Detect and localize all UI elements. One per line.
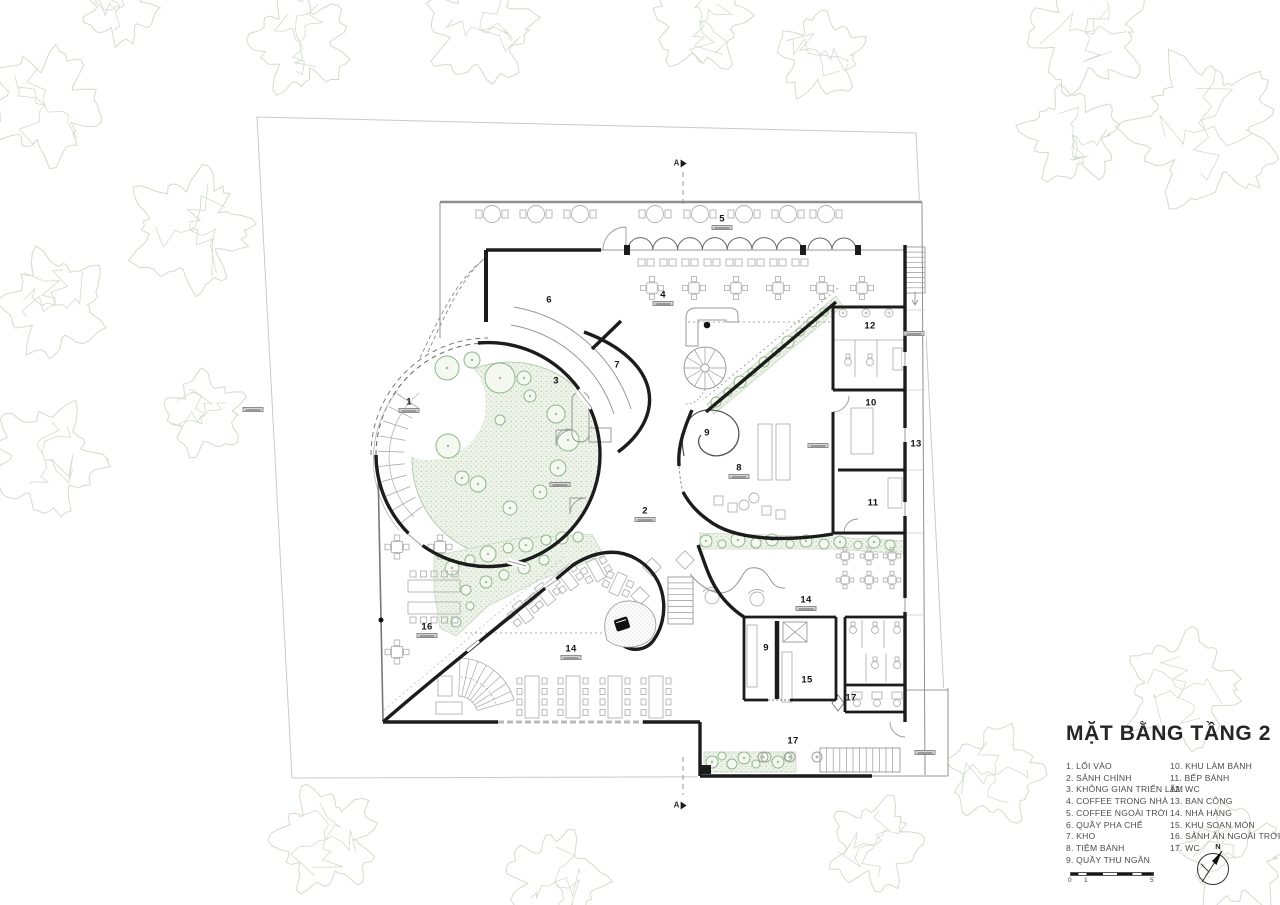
north-arrow-icon: N: [1192, 842, 1236, 892]
section-marker: A: [674, 159, 687, 168]
legend-item: 12. WC: [1170, 784, 1280, 796]
page-title: MẶT BẰNG TẦNG 2: [1066, 722, 1271, 746]
room-number-label: 8: [736, 463, 742, 474]
room-number-label: 3: [553, 376, 559, 387]
room-number-label: 1: [406, 397, 412, 408]
legend-item: 9. QUẦY THU NGÂN: [1066, 855, 1183, 867]
section-arrow-icon: [680, 801, 686, 809]
room-number-label: 4: [660, 290, 666, 301]
elevation-badge: [417, 633, 438, 638]
scale-bar-graphic: [1070, 872, 1154, 876]
room-number-label: 13: [910, 439, 921, 450]
elevation-badge: [915, 750, 936, 755]
room-number-label: 14: [565, 644, 576, 655]
legend-item: 2. SẢNH CHÍNH: [1066, 773, 1183, 785]
section-arrow-icon: [680, 159, 686, 167]
scale-tick-5: 5: [1150, 877, 1154, 884]
section-marker-label: A: [674, 159, 680, 168]
elevation-badge: [243, 407, 264, 412]
room-number-label: 11: [868, 498, 879, 509]
section-marker: A: [674, 801, 687, 810]
elevation-badge: [904, 331, 925, 336]
elevation-badge: [712, 225, 733, 230]
room-number-label: 17: [787, 736, 798, 747]
legend-item: 14. NHÀ HÀNG: [1170, 808, 1280, 820]
room-number-label: 9: [763, 643, 769, 654]
section-marker-label: A: [674, 801, 680, 810]
room-number-label: 10: [865, 398, 876, 409]
legend-item: 13. BAN CÔNG: [1170, 796, 1280, 808]
scale-tick-0: 0: [1068, 877, 1072, 884]
legend-item: 6. QUẦY PHA CHẾ: [1066, 820, 1183, 832]
legend-item: 5. COFFEE NGOÀI TRỜI: [1066, 808, 1183, 820]
elevation-badge: [808, 443, 829, 448]
legend-item: 15. KHU SOẠN MÓN: [1170, 820, 1280, 832]
elevation-badge: [635, 517, 656, 522]
room-number-label: 14: [800, 595, 811, 606]
legend-item: 8. TIỆM BÁNH: [1066, 843, 1183, 855]
legend-item: 11. BẾP BÁNH: [1170, 773, 1280, 785]
legend-item: 7. KHO: [1066, 831, 1183, 843]
elevation-badge: [796, 606, 817, 611]
elevation-badge: [653, 301, 674, 306]
elevation-badge: [729, 474, 750, 479]
room-number-label: 5: [719, 214, 725, 225]
legend-item: 1. LỐI VÀO: [1066, 761, 1183, 773]
legend-item: 10. KHU LÀM BÁNH: [1170, 761, 1280, 773]
room-number-label: 7: [614, 360, 620, 371]
legend-column-2: 10. KHU LÀM BÁNH11. BẾP BÁNH12. WC13. BA…: [1170, 761, 1280, 855]
scale-tick-1: 1: [1084, 877, 1088, 884]
room-number-label: 2: [642, 506, 648, 517]
elevation-badge: [550, 482, 571, 487]
north-label: N: [1215, 842, 1220, 851]
room-number-label: 9: [704, 428, 710, 439]
floor-plan-page: 123456789910111213141415161717 AA MẶT BẰ…: [0, 0, 1280, 905]
legend-item: 3. KHÔNG GIAN TRIỂN LÃM: [1066, 784, 1183, 796]
room-number-label: 6: [546, 295, 552, 306]
lounge-paisley: [605, 601, 656, 647]
legend-item: 4. COFFEE TRONG NHÀ: [1066, 796, 1183, 808]
elevation-badge: [561, 655, 582, 660]
elevation-badge: [399, 408, 420, 413]
room-number-label: 15: [801, 675, 812, 686]
scale-bar: 0 1 5: [1070, 866, 1154, 884]
room-number-label: 17: [845, 693, 856, 704]
legend-column-1: 1. LỐI VÀO2. SẢNH CHÍNH3. KHÔNG GIAN TRI…: [1066, 761, 1183, 866]
room-number-label: 16: [421, 622, 432, 633]
room-number-label: 12: [864, 321, 875, 332]
